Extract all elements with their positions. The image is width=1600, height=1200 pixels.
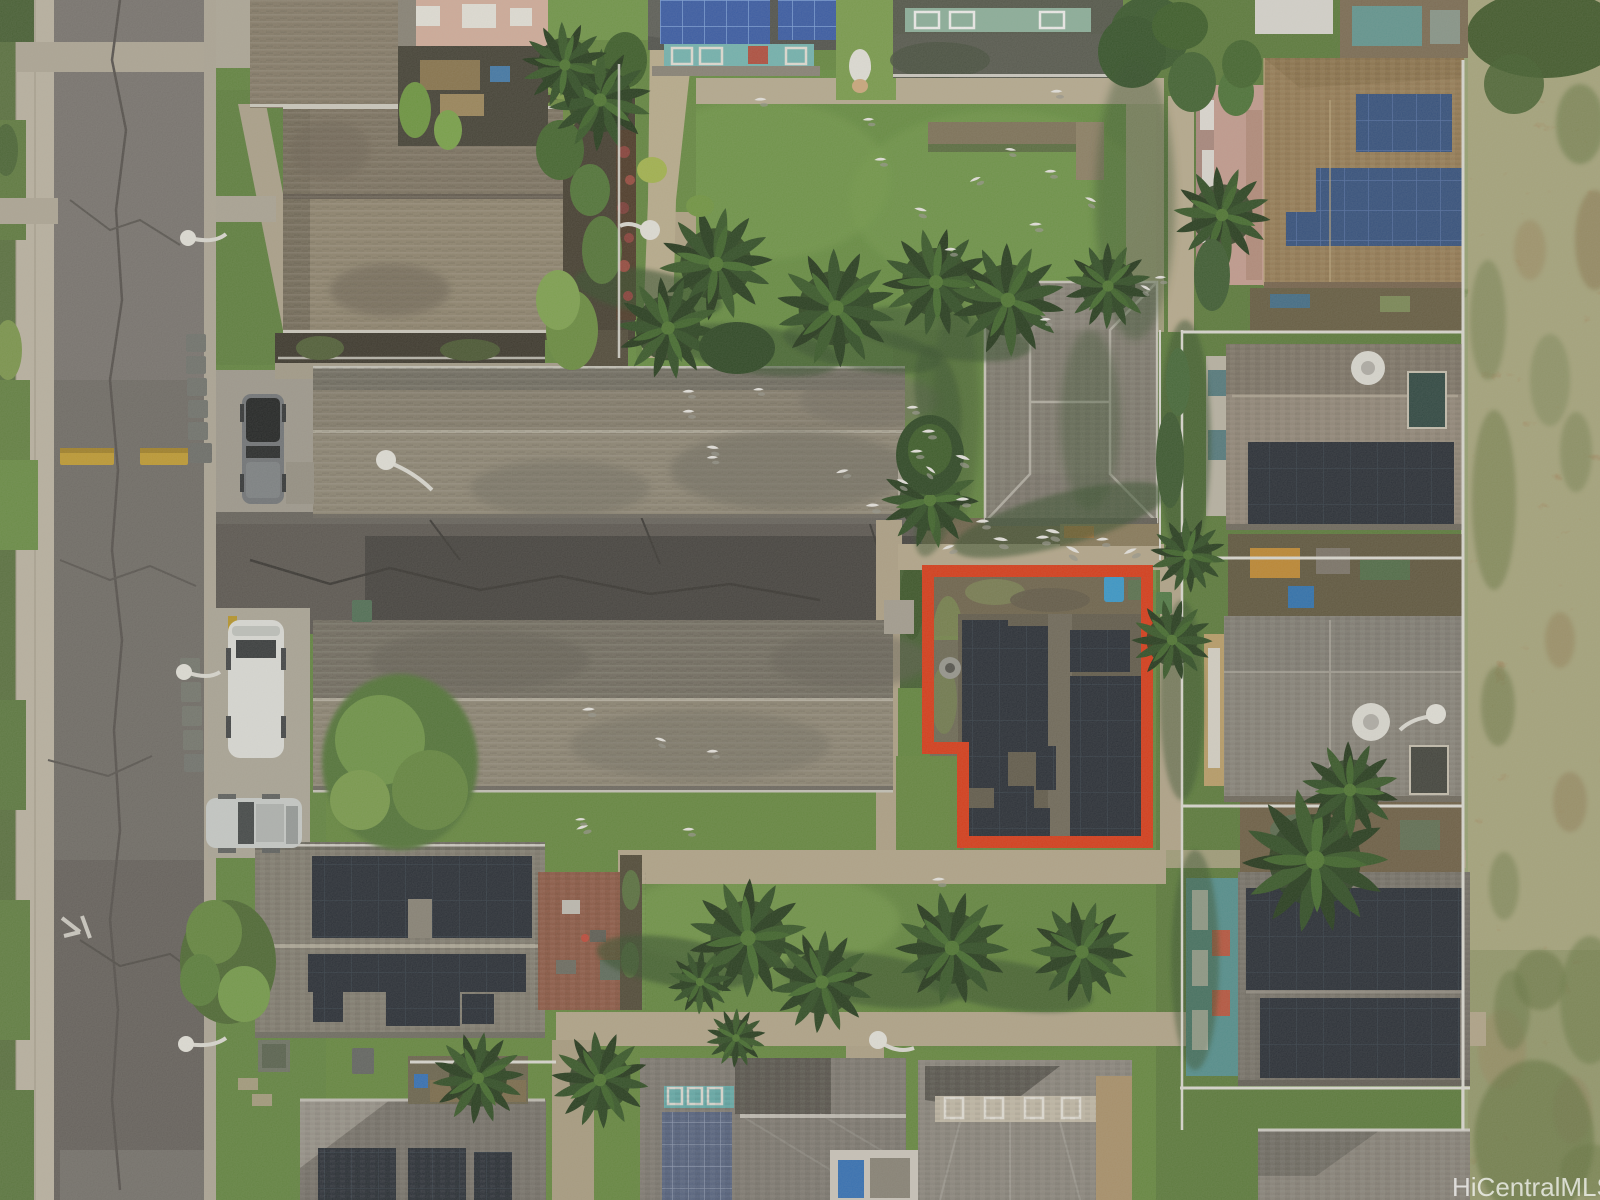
svg-text:HiCentralMLS: HiCentralMLS xyxy=(1452,1172,1600,1200)
